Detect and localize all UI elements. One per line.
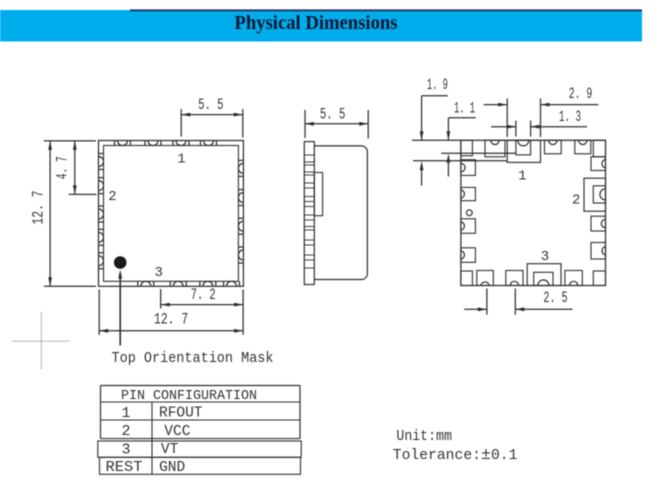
svg-text:2: 2 [121,423,130,440]
svg-text:3: 3 [121,441,130,458]
svg-text:REST: REST [106,460,143,476]
svg-text:7. 2: 7. 2 [191,286,216,304]
svg-text:Physical Dimensions: Physical Dimensions [235,12,398,34]
svg-text:4. 7: 4. 7 [54,156,72,179]
svg-text:1: 1 [518,169,526,185]
svg-text:2. 5: 2. 5 [543,289,567,307]
svg-text:1. 3: 1. 3 [559,108,581,126]
svg-text:RFOUT: RFOUT [159,406,203,422]
svg-text:2. 9: 2. 9 [569,85,592,103]
svg-text:PIN CONFIGURATION: PIN CONFIGURATION [121,389,257,404]
svg-text:12. 7: 12. 7 [30,191,48,225]
svg-text:1: 1 [177,151,185,167]
svg-text:GND: GND [159,460,185,476]
svg-text:1. 1: 1. 1 [454,99,475,117]
svg-text:Top Orientation Mask: Top Orientation Mask [112,350,274,367]
svg-text:12. 7: 12. 7 [154,311,188,329]
svg-text:Tolerance:±0.1: Tolerance:±0.1 [393,446,518,465]
svg-text:Unit:mm: Unit:mm [396,428,452,445]
svg-text:5. 5: 5. 5 [320,105,345,123]
svg-text:VCC: VCC [164,424,190,440]
svg-text:2: 2 [572,193,580,209]
svg-text:1: 1 [121,405,130,422]
svg-text:5. 5: 5. 5 [198,96,223,114]
svg-text:VT: VT [161,442,179,458]
svg-text:3: 3 [541,249,549,265]
svg-text:3: 3 [154,265,162,281]
svg-text:1. 9: 1. 9 [427,76,448,94]
svg-text:2: 2 [108,189,116,205]
